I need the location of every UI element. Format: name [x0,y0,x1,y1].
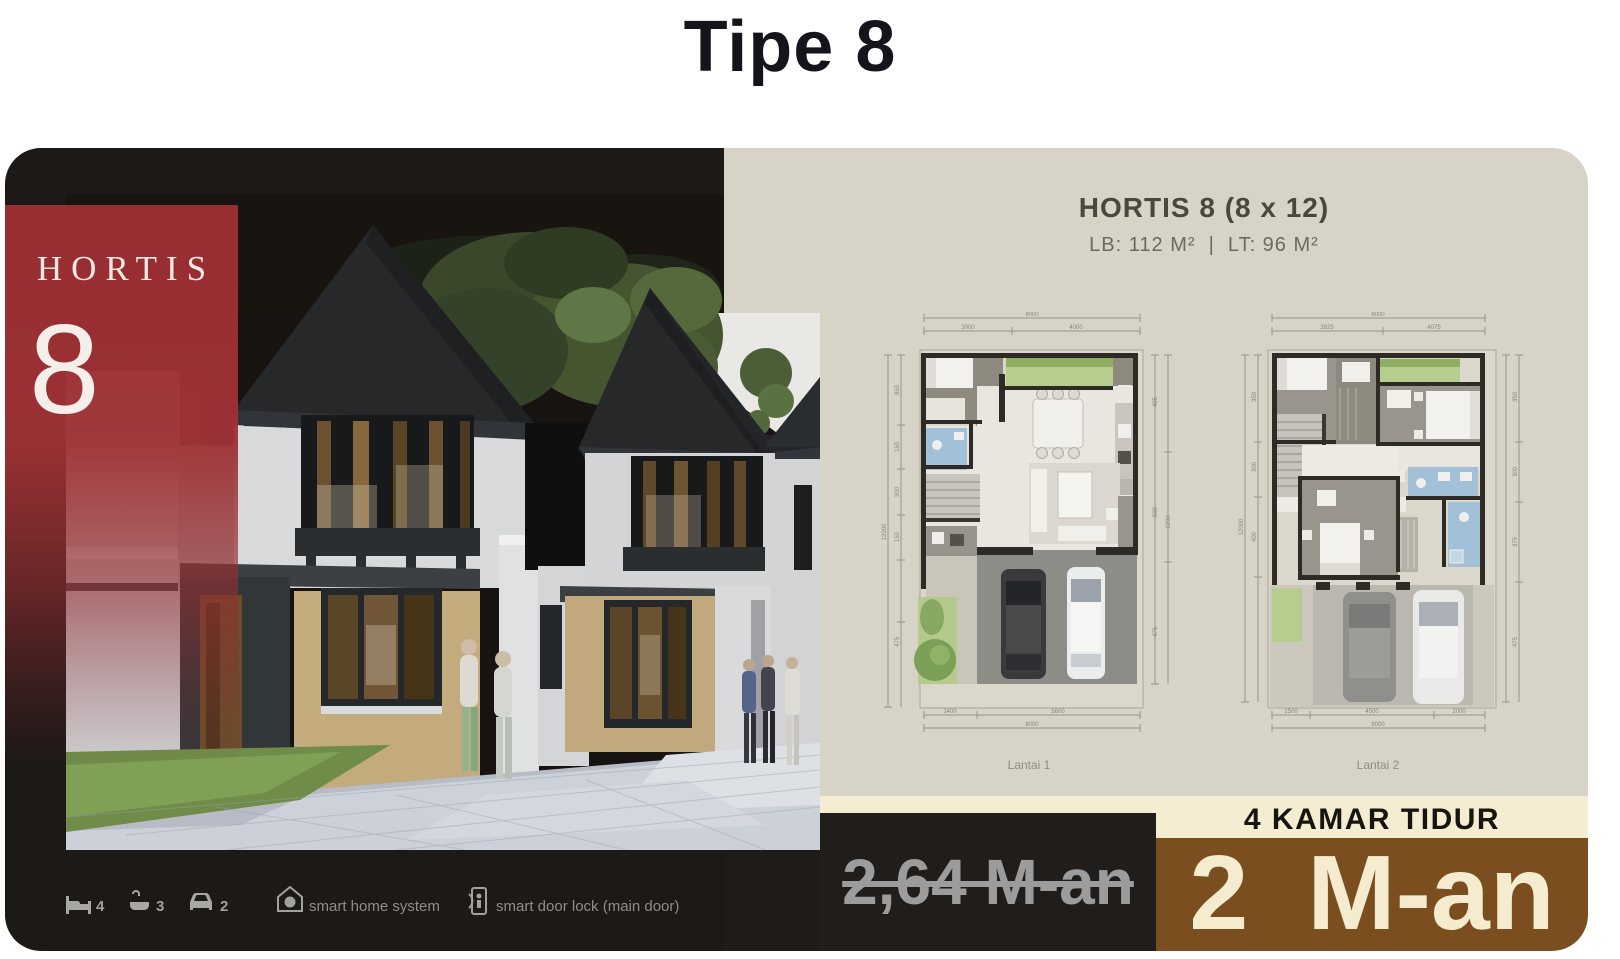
svg-text:300: 300 [895,486,901,497]
svg-text:150: 150 [895,441,901,452]
svg-text:smart home system: smart home system [309,898,440,915]
svg-text:5600: 5600 [1051,709,1065,715]
svg-text:375: 375 [1513,536,1519,547]
svg-text:1500: 1500 [1284,709,1298,715]
svg-text:1200: 1200 [1166,515,1172,529]
svg-text:850: 850 [895,384,901,395]
svg-text:405: 405 [1153,396,1159,407]
svg-text:3: 3 [156,898,164,915]
svg-text:350: 350 [1513,391,1519,402]
svg-text:2: 2 [220,898,228,915]
svg-text:4075: 4075 [1427,325,1441,331]
svg-text:8000: 8000 [1025,722,1039,728]
svg-text:400: 400 [1252,531,1258,542]
svg-text:Lantai 1: Lantai 1 [1008,758,1051,772]
svg-text:8000: 8000 [1371,312,1385,318]
svg-text:8000: 8000 [1025,312,1039,318]
svg-text:3000: 3000 [961,325,975,331]
svg-text:150: 150 [895,531,901,542]
svg-text:4500: 4500 [1365,709,1379,715]
svg-text:4000: 4000 [1069,325,1083,331]
svg-text:3925: 3925 [1320,325,1334,331]
svg-text:475: 475 [1513,636,1519,647]
svg-text:475: 475 [1153,626,1159,637]
svg-text:12000: 12000 [882,523,888,540]
svg-text:350: 350 [1252,391,1258,402]
svg-text:12000: 12000 [1239,518,1245,535]
svg-text:8000: 8000 [1371,722,1385,728]
svg-text:2000: 2000 [1452,709,1466,715]
svg-text:smart door lock (main door): smart door lock (main door) [496,898,679,915]
svg-text:4: 4 [96,898,105,915]
svg-text:2400: 2400 [943,709,957,715]
svg-text:Lantai 2: Lantai 2 [1357,758,1400,772]
svg-text:475: 475 [895,636,901,647]
svg-text:300: 300 [1252,461,1258,472]
svg-text:500: 500 [1153,506,1159,517]
svg-text:300: 300 [1513,466,1519,477]
